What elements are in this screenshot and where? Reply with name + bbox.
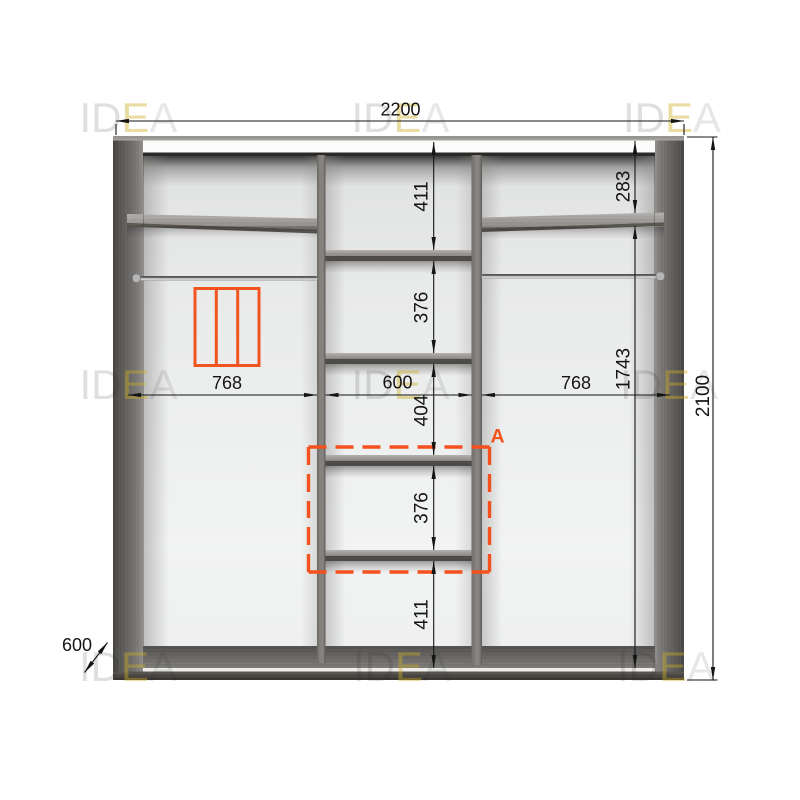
svg-text:376: 376 (412, 292, 433, 324)
svg-text:411: 411 (412, 181, 433, 211)
svg-text:376: 376 (412, 492, 433, 524)
svg-text:1743: 1743 (614, 348, 635, 390)
svg-text:A: A (490, 426, 504, 448)
svg-text:IDEA: IDEA (353, 643, 451, 690)
svg-text:IDEA: IDEA (79, 94, 177, 141)
svg-text:2100: 2100 (693, 375, 714, 417)
svg-text:411: 411 (412, 599, 433, 629)
svg-text:IDEA: IDEA (79, 643, 177, 690)
svg-text:600: 600 (382, 373, 412, 393)
svg-text:600: 600 (62, 635, 92, 655)
svg-text:2200: 2200 (380, 100, 420, 120)
svg-text:IDEA: IDEA (79, 361, 177, 408)
svg-text:IDEA: IDEA (617, 643, 715, 690)
svg-text:404: 404 (412, 394, 433, 426)
svg-text:768: 768 (561, 373, 591, 393)
svg-text:768: 768 (212, 373, 242, 393)
svg-text:283: 283 (614, 171, 635, 203)
svg-text:IDEA: IDEA (623, 94, 721, 141)
